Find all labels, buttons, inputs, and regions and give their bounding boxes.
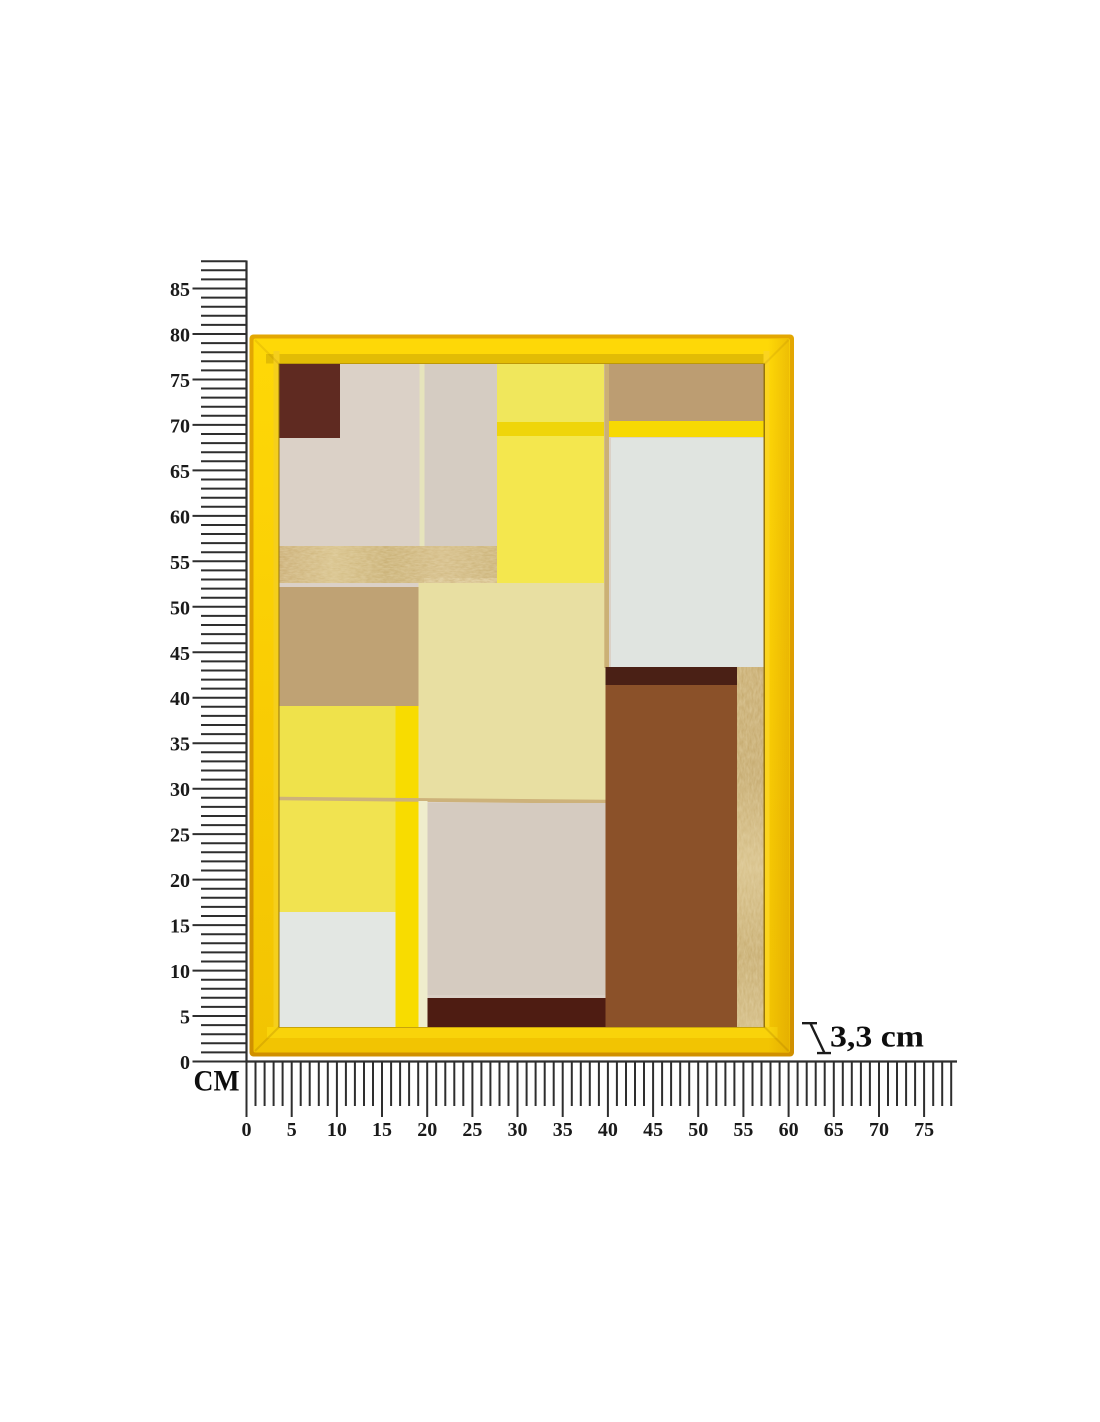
svg-text:80: 80 [170, 325, 190, 347]
svg-text:50: 50 [170, 597, 190, 619]
svg-text:20: 20 [417, 1119, 437, 1141]
svg-text:35: 35 [170, 734, 190, 756]
svg-text:75: 75 [170, 370, 190, 392]
svg-text:30: 30 [508, 1119, 528, 1141]
svg-text:55: 55 [733, 1119, 753, 1141]
svg-text:0: 0 [180, 1052, 190, 1074]
svg-text:50: 50 [688, 1119, 708, 1141]
svg-text:30: 30 [170, 779, 190, 801]
svg-text:60: 60 [779, 1119, 799, 1141]
svg-text:70: 70 [869, 1119, 889, 1141]
svg-text:CM: CM [194, 1065, 240, 1098]
svg-text:65: 65 [824, 1119, 844, 1141]
svg-text:3,3 cm: 3,3 cm [830, 1019, 924, 1054]
svg-text:25: 25 [170, 825, 190, 847]
svg-text:75: 75 [914, 1119, 934, 1141]
svg-text:65: 65 [170, 461, 190, 483]
svg-text:70: 70 [170, 415, 190, 437]
svg-text:20: 20 [170, 870, 190, 892]
svg-text:5: 5 [287, 1119, 297, 1141]
svg-text:25: 25 [462, 1119, 482, 1141]
svg-text:45: 45 [643, 1119, 663, 1141]
svg-text:60: 60 [170, 506, 190, 528]
svg-text:15: 15 [170, 916, 190, 938]
svg-text:15: 15 [372, 1119, 392, 1141]
svg-text:0: 0 [242, 1119, 252, 1141]
svg-text:10: 10 [327, 1119, 347, 1141]
svg-text:5: 5 [180, 1007, 190, 1029]
svg-text:85: 85 [170, 279, 190, 301]
svg-text:55: 55 [170, 552, 190, 574]
svg-text:10: 10 [170, 961, 190, 983]
svg-text:45: 45 [170, 643, 190, 665]
svg-text:40: 40 [170, 688, 190, 710]
svg-text:40: 40 [598, 1119, 618, 1141]
svg-text:35: 35 [553, 1119, 573, 1141]
